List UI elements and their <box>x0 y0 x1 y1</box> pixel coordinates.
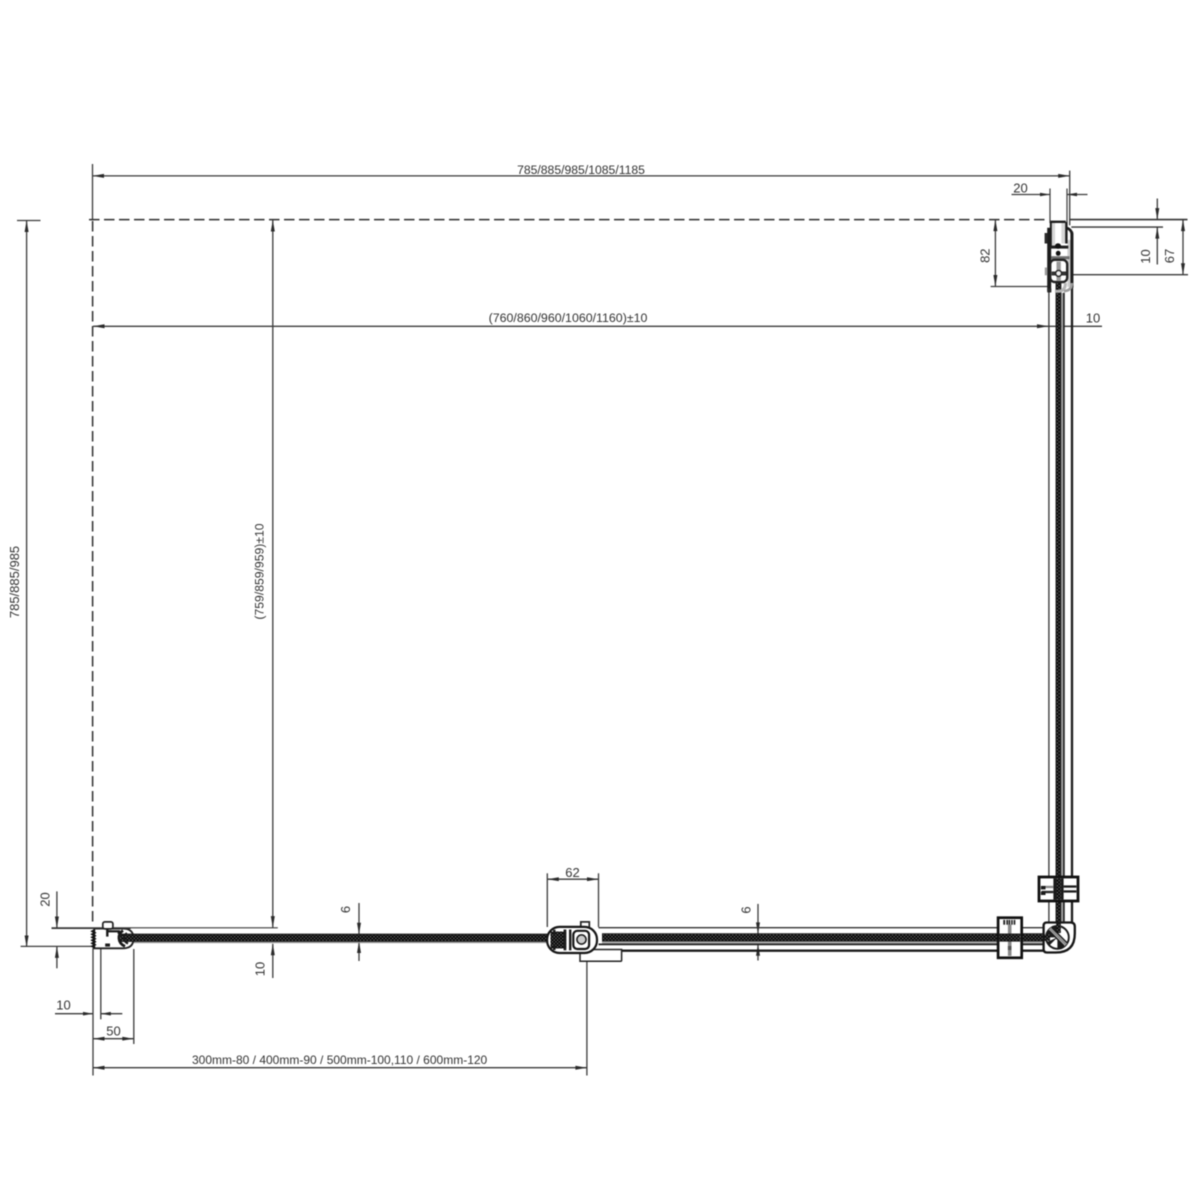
svg-text:10: 10 <box>56 998 70 1013</box>
svg-text:10: 10 <box>1138 249 1153 263</box>
svg-text:20: 20 <box>1013 181 1027 196</box>
svg-text:6: 6 <box>739 906 754 913</box>
svg-text:785/885/985/1085/1185: 785/885/985/1085/1185 <box>517 163 645 177</box>
svg-text:50: 50 <box>106 1024 120 1039</box>
svg-text:62: 62 <box>565 865 579 880</box>
svg-text:6: 6 <box>338 906 353 913</box>
svg-text:300mm-80 / 400mm-90 / 500mm-10: 300mm-80 / 400mm-90 / 500mm-100,110 / 60… <box>192 1053 488 1067</box>
svg-text:(760/860/960/1060/1160)±10: (760/860/960/1060/1160)±10 <box>489 311 648 325</box>
svg-text:10: 10 <box>253 962 268 976</box>
svg-text:(759/859/959)±10: (759/859/959)±10 <box>253 523 267 619</box>
svg-text:20: 20 <box>37 892 52 906</box>
svg-text:10: 10 <box>1086 310 1100 325</box>
svg-text:67: 67 <box>1162 249 1177 263</box>
svg-text:785/885/985: 785/885/985 <box>7 546 22 618</box>
svg-text:82: 82 <box>978 248 993 262</box>
